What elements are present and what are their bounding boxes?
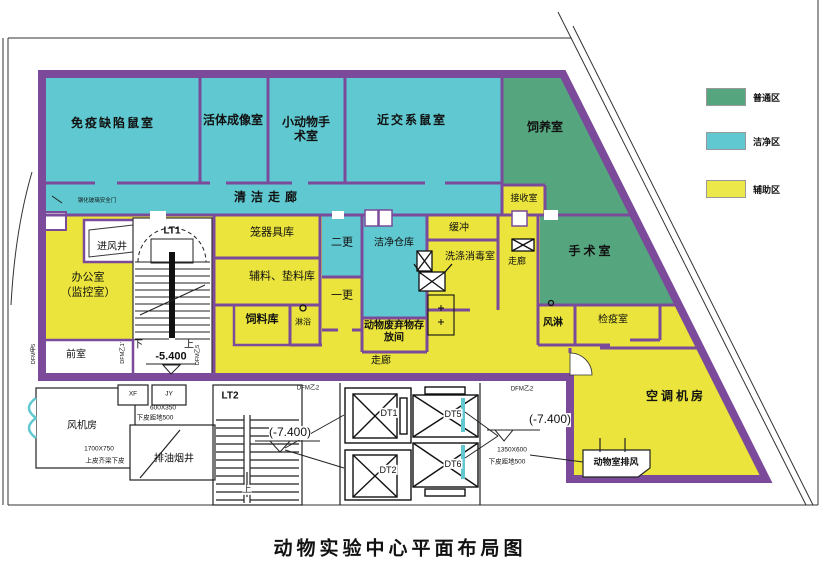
code-dfm-b5: DFM乙5 [193,345,201,365]
elevation-pit-left: (-7.400) [269,426,311,440]
room-label-oil-shaft: 排油烟井 [154,453,194,465]
code-xf: XF [129,390,137,397]
legend-swatch-clean [706,132,746,150]
code-dfm-a5: DFM甲5 [29,344,37,364]
room-label-feed-store: 饲料库 [246,314,279,327]
room-label-buffer: 缓冲 [449,222,469,234]
legend-swatch-normal [706,88,746,106]
room-label-air-shower: 风淋 [543,317,563,329]
room-label-surgery: 手术室 [568,245,613,259]
room-label-waste-room: 动物废弃物存放间 [364,321,424,344]
room-label-inbred: 近交系鼠室 [377,114,447,128]
room-label-front-room: 前室 [66,349,86,361]
room-label-washing: 洗涤消毒室 [445,251,495,263]
room-label-breeding: 饲养室 [527,121,563,135]
room-label-second-change: 二更 [331,237,353,250]
elevators [345,387,478,500]
room-label-quarantine: 检疫室 [598,314,628,326]
elevation-lt1: -5.400 [155,351,186,364]
room-label-immuno: 免疫缺陷鼠室 [71,117,155,131]
stair-label-lt1: LT1 [163,225,180,237]
code-jy: JY [165,390,173,397]
room-label-shower: 淋浴 [295,317,311,326]
dim-duct2-size: 1700X750 [84,445,114,452]
legend-label-aux: 辅助区 [753,183,780,196]
room-label-clean-warehouse: 洁净仓库 [374,237,414,249]
elevator-label-dt5: DT5 [443,409,462,419]
room-label-office-1: 办公室 [72,272,105,285]
room-label-corridor-vertical: 走廊 [508,257,526,267]
room-label-office-2: （监控室） [61,287,116,300]
stair-label-down: 下 [133,339,143,351]
dim-duct1-size: 600X350 [150,404,176,411]
dim-duct3-note: 下皮距地500 [489,458,526,465]
dim-duct2-note: 上皮齐梁下皮 [86,457,125,464]
room-label-cage-store: 笼器具库 [250,227,294,240]
legend-item-clean: 洁净区 [706,133,780,149]
room-label-imaging: 活体成像室 [203,114,263,128]
legend-swatch-aux [706,180,746,198]
room-label-ac-room: 空调机房 [646,390,706,404]
code-dfm-b1: DFM乙1' [118,342,126,364]
room-label-animal-exhaust: 动物室排风 [593,458,638,468]
floor-plan-drawing [0,0,832,566]
elevator-label-dt1: DT1 [379,408,398,418]
room-label-receiving: 接收室 [510,194,537,204]
elevation-pit-right: (-7.400) [529,413,571,427]
elevator-label-dt2: DT2 [378,465,397,475]
room-label-small-surgery: 小动物手术室 [277,116,335,144]
elevator-label-dt6: DT6 [443,459,462,469]
room-label-fan-room: 风机房 [67,420,97,432]
legend-item-aux: 辅助区 [706,181,780,197]
room-label-first-change: 一更 [331,290,353,303]
dim-duct3-size: 1350X600 [497,446,527,453]
room-label-corridor-bottom: 走廊 [371,355,391,367]
stair-label-lt2: LT2 [221,390,238,402]
stair-label-up2: 上 [242,485,251,495]
code-dfm-b2-left: DFM乙2 [297,386,319,393]
code-dfm-b2-right: DFM乙2 [511,387,533,394]
room-label-air-inlet: 进风井 [97,241,127,253]
note-glass-door: 钢化玻璃安全门 [78,198,117,204]
legend-label-normal: 普通区 [753,91,780,104]
legend-label-clean: 洁净区 [753,135,780,148]
floor-plan-canvas: 免疫缺陷鼠室 活体成像室 小动物手术室 近交系鼠室 饲养室 清洁走廊 接收室 笼… [0,0,832,566]
drawing-title: 动物实验中心平面布局图 [273,534,526,561]
room-label-material-store: 辅料、垫料库 [249,271,315,284]
dim-duct1-note: 下皮距地500 [137,414,174,421]
legend-item-normal: 普通区 [706,89,780,105]
room-label-clean-corridor: 清洁走廊 [234,191,302,205]
